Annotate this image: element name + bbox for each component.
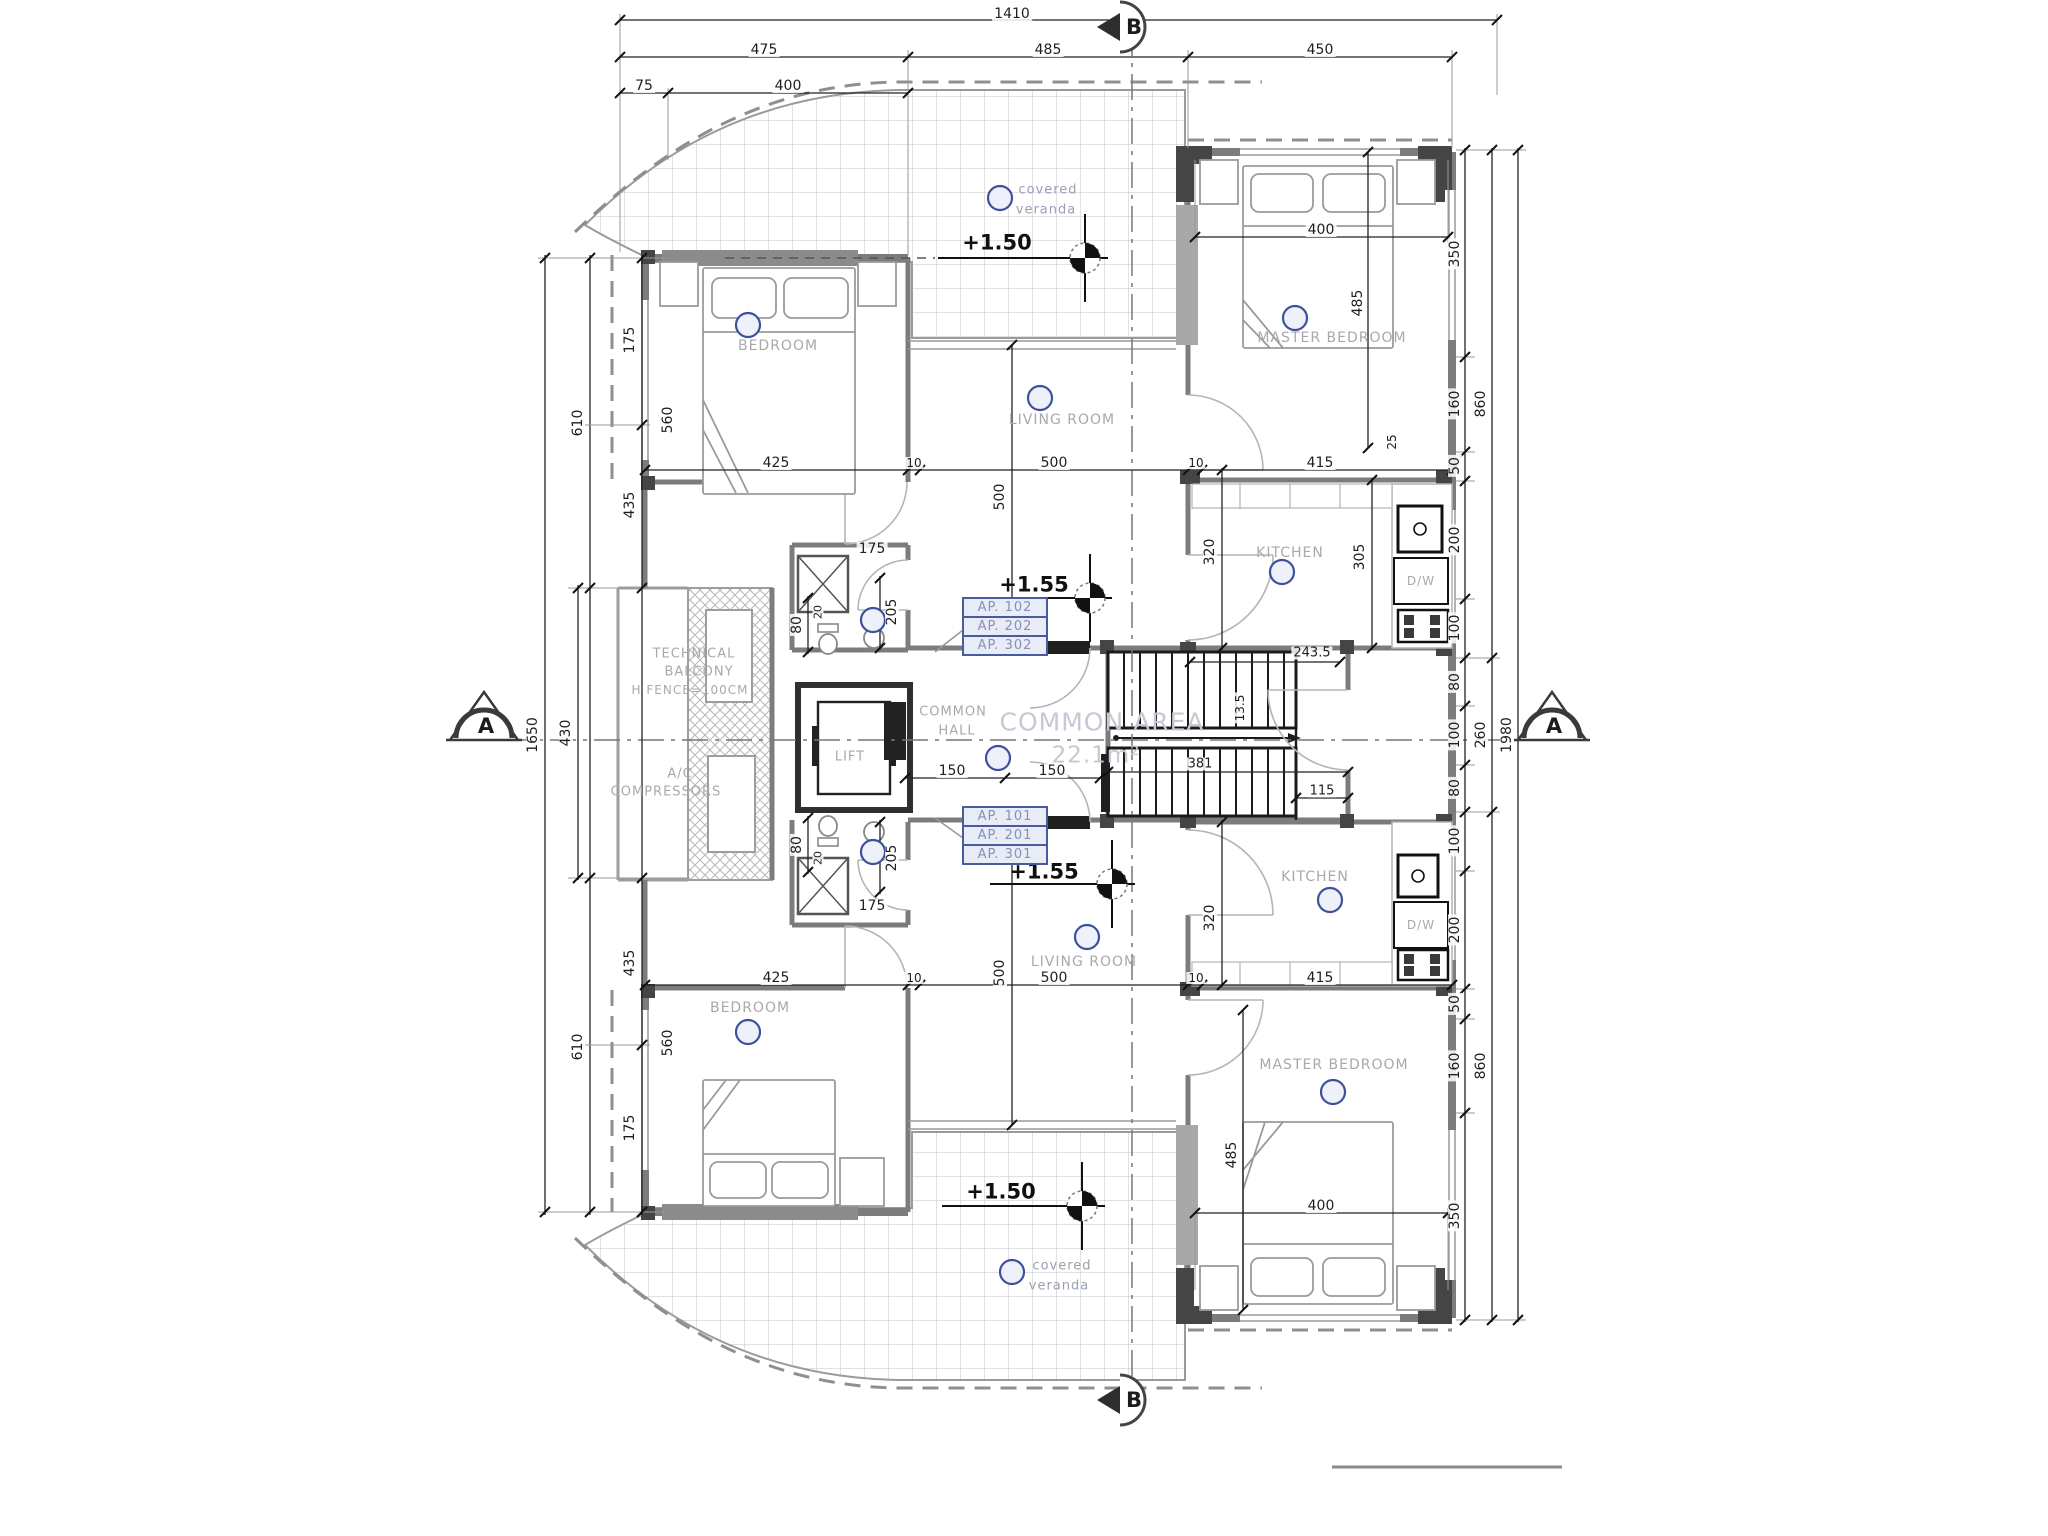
room-symbol-kitchen-lower — [1318, 888, 1342, 912]
apartment-label: AP. 202 — [962, 616, 1048, 637]
apartment-label: AP. 201 — [962, 825, 1048, 846]
lift — [798, 685, 910, 810]
dishwasher-lower — [1394, 902, 1448, 948]
stairs — [1108, 648, 1301, 820]
sink-upper — [1398, 506, 1442, 552]
apartment-label-box-top: AP. 102 AP. 202 AP. 302 — [962, 597, 1048, 654]
dishwasher-upper — [1394, 558, 1448, 604]
section-letter-a-left: A — [478, 714, 494, 738]
wc-fixtures-lower — [798, 816, 884, 914]
kitchen-fixtures-upper — [1192, 484, 1452, 648]
apartment-label: AP. 102 — [962, 597, 1048, 618]
room-symbol-living-lower — [1075, 925, 1099, 949]
sink-lower — [1398, 855, 1438, 897]
room-symbol-common-hall — [986, 746, 1010, 770]
section-letter-b-bottom: B — [1126, 1388, 1142, 1412]
room-symbol-master-upper — [1283, 306, 1307, 330]
room-symbol-wc-lower — [861, 840, 885, 864]
section-letter-b-top: B — [1126, 15, 1142, 39]
veranda-bottom-tiles — [585, 1132, 1185, 1380]
apartment-label: AP. 301 — [962, 844, 1048, 865]
room-symbol-veranda-top — [988, 186, 1012, 210]
room-symbol-veranda-bottom — [1000, 1260, 1024, 1284]
room-symbol-bedroom-upper — [736, 313, 760, 337]
toilet-upper — [819, 634, 837, 654]
section-letter-a-right: A — [1546, 714, 1562, 738]
bed-bedroom-upper — [660, 262, 896, 494]
room-symbol-bedroom-lower — [736, 1020, 760, 1044]
wc-fixtures-upper — [798, 556, 884, 654]
floor-plan-drawing — [0, 0, 2048, 1536]
room-symbol-wc-upper — [861, 608, 885, 632]
apartment-label: AP. 101 — [962, 806, 1048, 827]
bed-master-upper — [1200, 160, 1435, 348]
room-symbol-living-upper — [1028, 386, 1052, 410]
apartment-label: AP. 302 — [962, 635, 1048, 656]
ac-unit-lower — [708, 756, 755, 852]
ac-unit-upper — [706, 610, 752, 702]
floor-plan-canvas: 1410475485450754001650430610610175435435… — [0, 0, 2048, 1536]
bed-bedroom-lower — [703, 1080, 884, 1206]
entrance-doors — [1030, 641, 1110, 829]
toilet-lower — [819, 816, 837, 836]
technical-balcony-hatch — [618, 588, 772, 880]
bed-master-lower — [1200, 1122, 1435, 1310]
room-symbol-kitchen-upper — [1270, 560, 1294, 584]
hall-door — [1101, 754, 1110, 812]
apartment-label-box-bottom: AP. 101 AP. 201 AP. 301 — [962, 806, 1048, 863]
stair-direction-arrow — [1288, 733, 1301, 743]
room-symbol-master-lower — [1321, 1080, 1345, 1104]
